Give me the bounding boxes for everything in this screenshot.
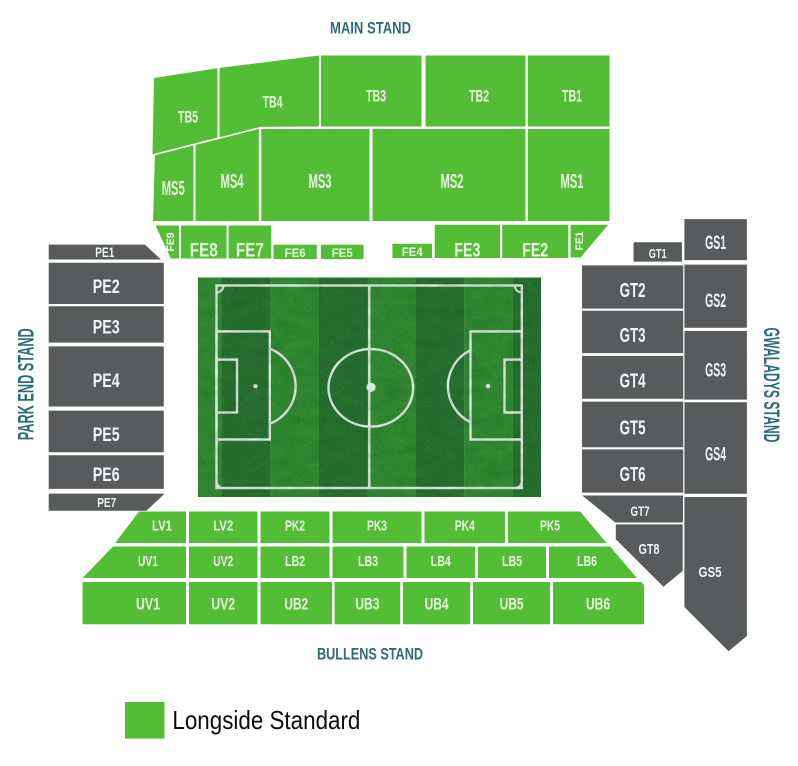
svg-text:LB5: LB5: [502, 553, 522, 570]
svg-text:GS3: GS3: [705, 360, 726, 381]
svg-text:FE2: FE2: [522, 240, 548, 261]
svg-text:LB4: LB4: [431, 553, 451, 570]
svg-text:GS4: GS4: [705, 445, 726, 466]
svg-text:LB2: LB2: [285, 553, 305, 570]
svg-text:TB3: TB3: [366, 87, 386, 106]
svg-text:UV1: UV1: [138, 553, 158, 570]
svg-text:GT8: GT8: [639, 541, 660, 558]
svg-text:PE1: PE1: [95, 245, 114, 260]
svg-text:PE4: PE4: [93, 371, 120, 392]
svg-text:GT7: GT7: [631, 503, 650, 519]
svg-text:FE3: FE3: [454, 240, 480, 261]
svg-text:PK5: PK5: [540, 518, 560, 535]
svg-text:LB3: LB3: [358, 553, 378, 570]
svg-text:TB4: TB4: [263, 93, 283, 112]
svg-text:FE7: FE7: [236, 240, 264, 261]
svg-text:PK3: PK3: [367, 518, 387, 535]
svg-text:PE7: PE7: [97, 496, 116, 510]
svg-text:UB4: UB4: [425, 596, 450, 614]
svg-text:GT5: GT5: [620, 418, 646, 440]
svg-text:MS4: MS4: [221, 171, 244, 193]
svg-text:UV1: UV1: [136, 596, 160, 614]
svg-text:UB3: UB3: [355, 596, 379, 614]
svg-text:MAIN STAND: MAIN STAND: [330, 19, 411, 38]
svg-text:GT3: GT3: [620, 325, 646, 347]
svg-text:FE5: FE5: [332, 246, 353, 260]
svg-text:FE1: FE1: [574, 232, 586, 251]
svg-text:MS5: MS5: [162, 178, 185, 200]
svg-text:GT4: GT4: [620, 370, 647, 392]
svg-text:Longside Standard: Longside Standard: [172, 705, 360, 735]
svg-text:TB5: TB5: [178, 108, 198, 127]
svg-text:BULLENS STAND: BULLENS STAND: [317, 645, 423, 664]
svg-text:PARK END STAND: PARK END STAND: [14, 328, 39, 440]
svg-text:PE5: PE5: [93, 425, 120, 446]
svg-text:PE3: PE3: [93, 318, 120, 339]
svg-text:FE6: FE6: [285, 246, 306, 260]
svg-text:UB2: UB2: [284, 596, 308, 614]
svg-text:GS5: GS5: [699, 564, 722, 581]
svg-text:UB6: UB6: [586, 596, 610, 614]
svg-text:GS1: GS1: [705, 233, 726, 254]
svg-text:LV1: LV1: [152, 518, 172, 535]
svg-text:FE4: FE4: [402, 245, 423, 259]
svg-text:MS2: MS2: [441, 171, 464, 193]
svg-text:PK4: PK4: [455, 518, 475, 535]
svg-text:FE9: FE9: [165, 233, 177, 252]
svg-text:LV2: LV2: [213, 518, 233, 535]
svg-text:PE6: PE6: [93, 465, 120, 486]
svg-text:UB5: UB5: [500, 596, 524, 614]
svg-text:GT2: GT2: [620, 280, 646, 302]
svg-text:FE8: FE8: [190, 240, 218, 261]
svg-text:PE2: PE2: [93, 277, 120, 298]
svg-text:LB6: LB6: [577, 553, 597, 570]
svg-text:GWALADYS STAND: GWALADYS STAND: [759, 328, 784, 443]
svg-text:MS3: MS3: [309, 171, 332, 193]
svg-text:GT6: GT6: [620, 464, 646, 486]
svg-text:UV2: UV2: [213, 553, 233, 570]
svg-text:UV2: UV2: [211, 596, 235, 614]
svg-text:TB1: TB1: [562, 87, 582, 106]
svg-text:TB2: TB2: [469, 87, 489, 106]
svg-text:PK2: PK2: [285, 518, 305, 535]
svg-text:MS1: MS1: [561, 171, 584, 193]
svg-text:GS2: GS2: [705, 291, 726, 312]
svg-text:GT1: GT1: [649, 246, 667, 261]
